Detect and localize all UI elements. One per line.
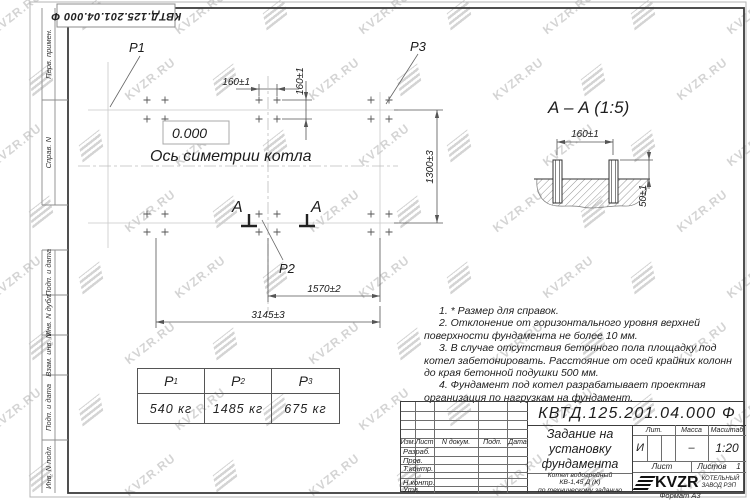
format-note: Формат А3 — [620, 491, 740, 500]
note-2: 2. Отклонение от горизонтального уровня … — [424, 317, 746, 342]
tb-scale-label: Масштаб — [708, 425, 746, 435]
top-designation-stamp: КВТД.125.201.04.000 Ф — [57, 4, 175, 27]
tb-doc-title: Задание на установку фундамента — [528, 426, 632, 473]
tb-designation: КВТД.125.201.04.000 Ф — [528, 402, 746, 425]
loads-header-p1: P1 — [138, 369, 205, 394]
text-layer: КВТД.125.201.04.000 Ф Перв. примен. Спра… — [0, 0, 750, 500]
top-designation-text: КВТД.125.201.04.000 Ф — [51, 10, 181, 22]
tb-header-list: Лист — [415, 438, 434, 447]
tb-header-izm: Изм. — [401, 438, 415, 447]
margin-label: Подп. и дата — [44, 249, 53, 296]
tb-scale-value: 1:20 — [708, 435, 746, 461]
tb-mass-label: Масса — [675, 425, 708, 435]
tb-mass-value: – — [675, 435, 708, 461]
tb-lit-label: Лит. — [633, 425, 675, 435]
tb-sheets-value: 1 — [731, 461, 746, 472]
margin-label: Подп. и дата — [44, 384, 53, 431]
tb-sheets-label: Листов — [693, 461, 731, 472]
tb-header-ndokum: N докум. — [434, 438, 478, 447]
loads-header-p3: P3 — [272, 369, 339, 394]
note-3: 3. В случае отсутствия бетонного пола пл… — [424, 342, 746, 379]
margin-cell-perv-primen: Перв. примен. — [42, 8, 55, 100]
tb-header-data: Дата — [507, 438, 528, 447]
technical-notes: 1. * Размер для справок. 2. Отклонение о… — [424, 305, 746, 404]
margin-label: Перв. примен. — [44, 29, 53, 79]
margin-label: Справ. N — [44, 137, 53, 168]
kvzr-logo-icon — [633, 475, 657, 490]
margin-label: Взам. инв. N — [44, 333, 53, 377]
title-block: Изм. Лист N докум. Подп. Дата Разраб. Пр… — [400, 401, 745, 492]
margin-cell-sprav-n: Справ. N — [42, 100, 55, 205]
tb-header-podp: Подп. — [478, 438, 507, 447]
loads-value-p2: 1485 кг — [205, 394, 272, 423]
note-1: 1. * Размер для справок. — [424, 305, 746, 317]
loads-value-p3: 675 кг — [272, 394, 339, 423]
margin-label: Инв. N дубл. — [44, 293, 53, 336]
margin-cell-podp-data-1: Подп. и дата — [42, 250, 55, 295]
tb-sheet-label: Лист — [633, 461, 691, 472]
margin-cell-podp-data-2: Подп. и дата — [42, 375, 55, 440]
margin-label: Инв. N подл. — [44, 445, 53, 489]
tb-logo-row: KVZR КОТЕЛЬНЫЙ ЗАВОД РЭП — [637, 472, 746, 493]
tb-product-name: Котел водогрейный КВ-1,45 Д (К) по техни… — [528, 473, 632, 493]
tb-lit-value: И — [633, 435, 647, 461]
tb-company-name: КОТЕЛЬНЫЙ ЗАВОД РЭП — [702, 476, 740, 489]
loads-value-p1: 540 кг — [138, 394, 205, 423]
engineering-drawing-sheet: KVZR.RUKVZR.RUKVZR.RUKVZR.RUKVZR.RUKVZR.… — [0, 0, 750, 500]
margin-cell-vzam-inv: Взам. инв. N — [42, 335, 55, 375]
loads-table: P1 P2 P3 540 кг 1485 кг 675 кг — [137, 368, 340, 424]
loads-header-p2: P2 — [205, 369, 272, 394]
tb-row-tkontr: Т.контр. — [401, 464, 436, 472]
kvzr-logo-text: KVZR — [655, 474, 699, 492]
tb-row-utv: Утв. — [401, 486, 436, 493]
margin-cell-inv-dubl: Инв. N дубл. — [42, 295, 55, 335]
margin-cell-inv-podl: Инв. N подл. — [42, 440, 55, 493]
